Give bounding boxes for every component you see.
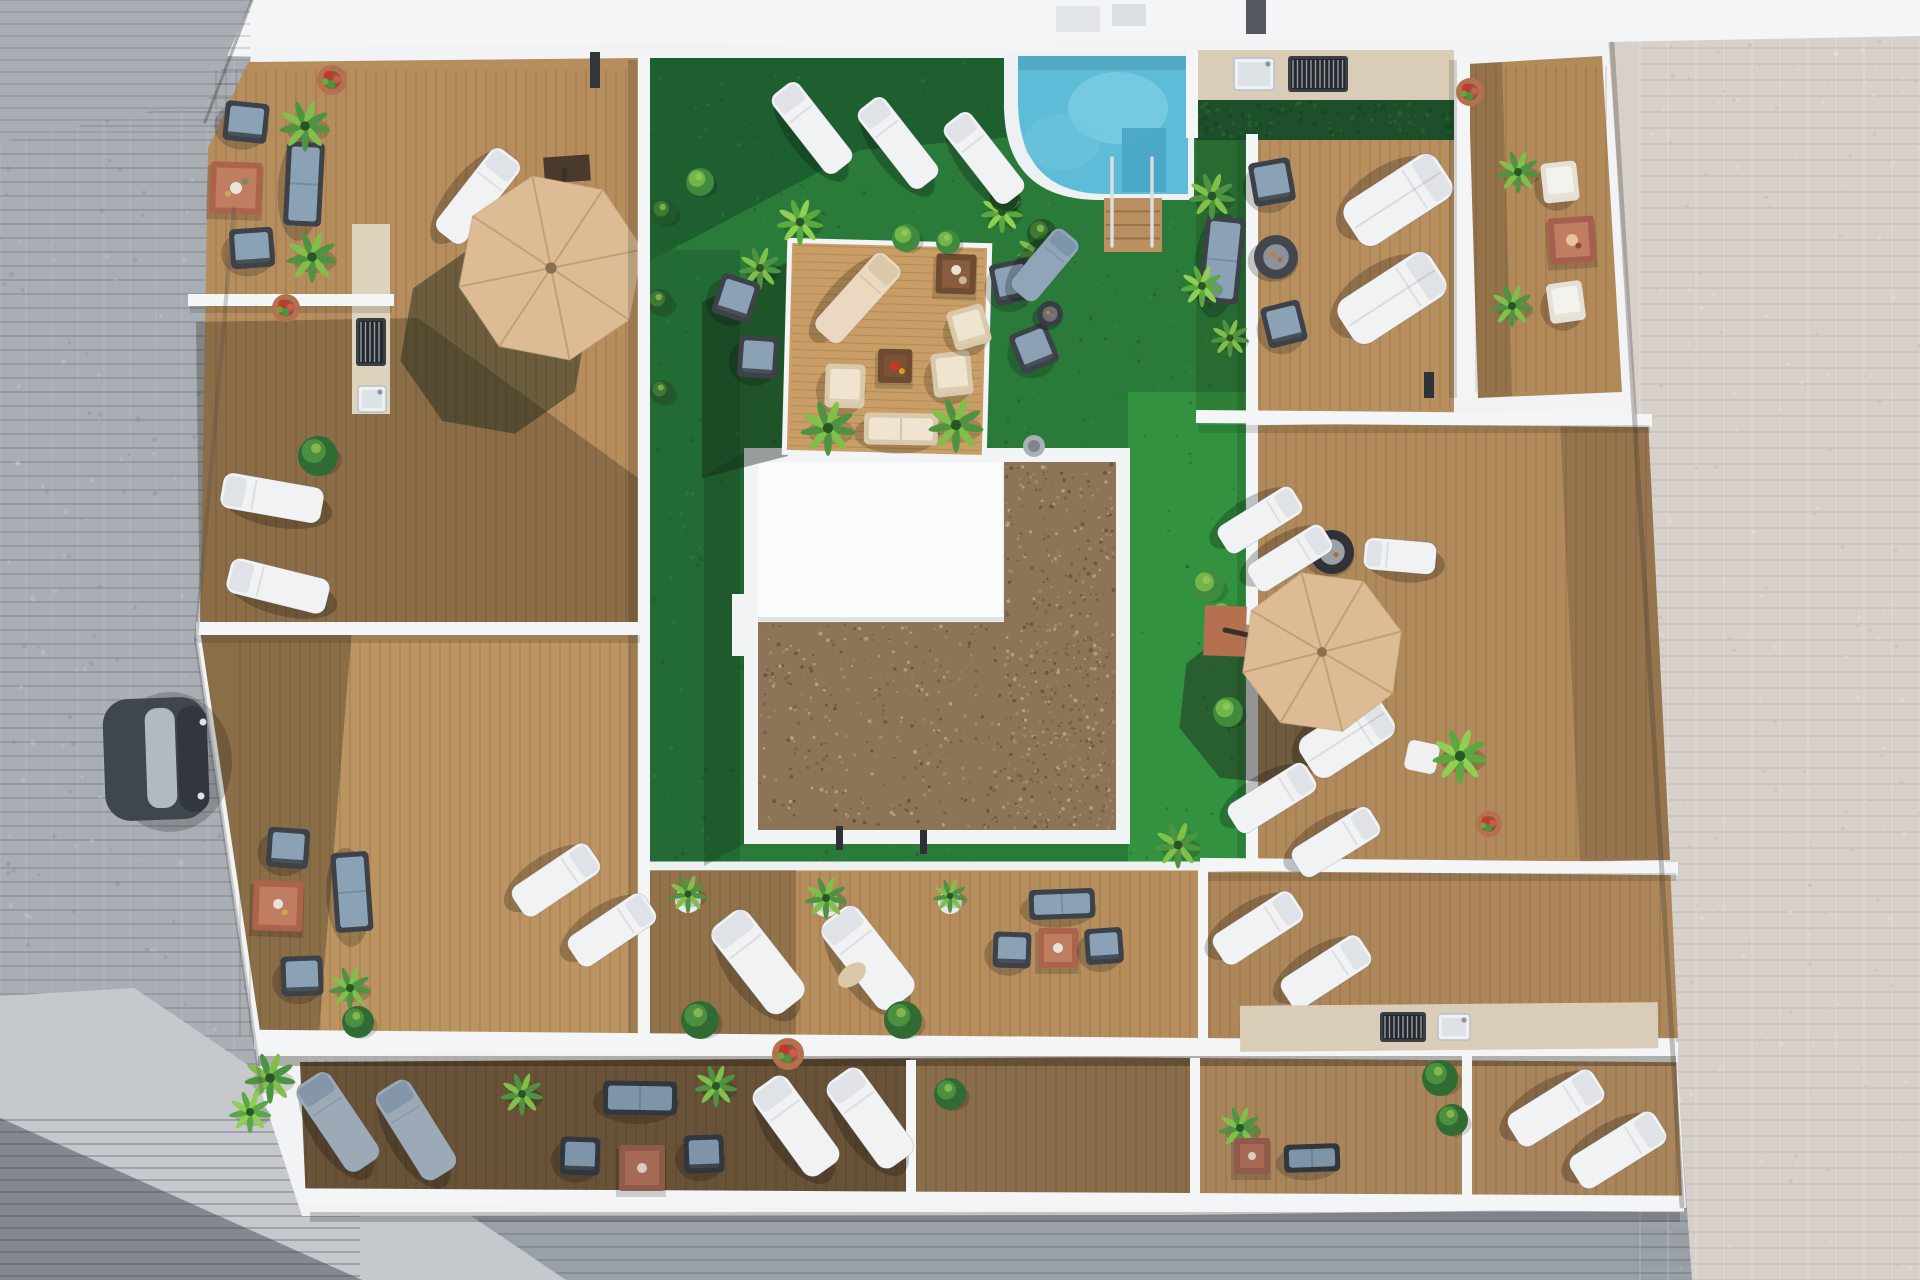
hedge <box>1196 100 1454 140</box>
pool-kitchen-sink <box>1234 58 1274 90</box>
pool-step-ledge <box>1122 128 1166 192</box>
rooftop-dark-box <box>1246 0 1266 34</box>
kitchen-br-grill <box>1380 1012 1426 1042</box>
wall-left-units-divider-shadow <box>198 635 640 643</box>
pergola-side-table <box>932 253 978 301</box>
kitchen-left-grill <box>356 318 386 366</box>
shadow-lower-terrace-mid <box>910 1056 1200 1200</box>
car-headlight <box>198 793 205 800</box>
wall-lower-divider <box>1190 1058 1200 1198</box>
bl-fire-table <box>249 880 305 938</box>
core-vent-cap <box>1028 440 1040 452</box>
balcony-fire-table <box>1544 215 1598 270</box>
pergola-coffee-table <box>875 349 914 390</box>
car-windshield <box>144 708 177 809</box>
rooftop-ac-unit <box>1056 6 1100 32</box>
wall-right-units-divider-shadow <box>1198 425 1650 433</box>
kitchen-left-sink <box>358 386 386 412</box>
scene-svg <box>0 0 1920 1280</box>
wall-bottom-band-divider <box>1198 870 1208 1040</box>
wall-left-units-divider <box>196 622 642 635</box>
core-side-box <box>732 594 758 656</box>
deck-bollard <box>920 830 927 854</box>
rooftop-aerial-render <box>0 0 1920 1280</box>
wall-pool-right <box>1186 50 1198 138</box>
pool-shadow-top <box>1018 56 1188 70</box>
deck-bollard <box>836 826 843 850</box>
rooftop-ac-unit-2 <box>1112 4 1146 26</box>
lawn-lamp-post <box>590 52 600 88</box>
tr-bollard <box>1424 372 1434 398</box>
wall-right-mid-bottom-shadow <box>1202 873 1676 881</box>
lt-fire-table <box>1231 1138 1271 1180</box>
wall-lower-divider <box>906 1060 916 1198</box>
flower-pot <box>317 65 347 95</box>
pool-kitchen-grill <box>1288 56 1348 92</box>
wall-balcony-shadow <box>1449 60 1457 398</box>
br-fire-table <box>1035 928 1079 974</box>
flower-pot <box>1456 78 1484 106</box>
flower-pot <box>772 1038 804 1070</box>
pool-water-highlight-2 <box>1024 114 1100 170</box>
kitchen-br-sink <box>1438 1014 1470 1040</box>
lt-fire-table <box>616 1145 666 1197</box>
core-shadow <box>704 452 744 866</box>
car-headlight <box>200 719 207 726</box>
wall-balcony <box>1458 56 1470 400</box>
flower-pot <box>272 294 300 322</box>
core-white-roof <box>758 462 1002 620</box>
roof-base-shadow <box>310 1212 1680 1222</box>
flower-pot <box>1476 811 1502 837</box>
